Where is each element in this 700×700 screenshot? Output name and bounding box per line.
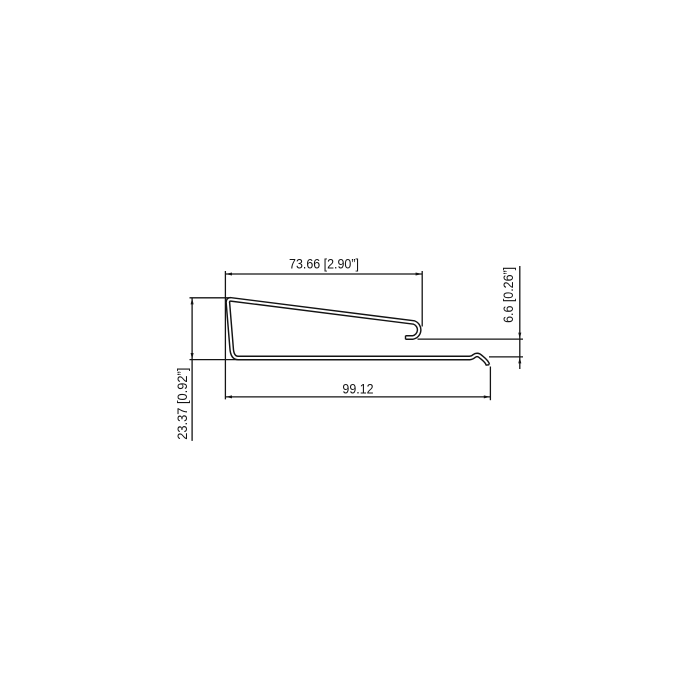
svg-text:73.66 [2.90”]: 73.66 [2.90”]	[289, 256, 359, 272]
svg-text:99.12: 99.12	[342, 381, 373, 397]
svg-text:23.37 [0.92”]: 23.37 [0.92”]	[175, 368, 190, 440]
svg-text:6.6 [0.26”]: 6.6 [0.26”]	[501, 267, 517, 323]
